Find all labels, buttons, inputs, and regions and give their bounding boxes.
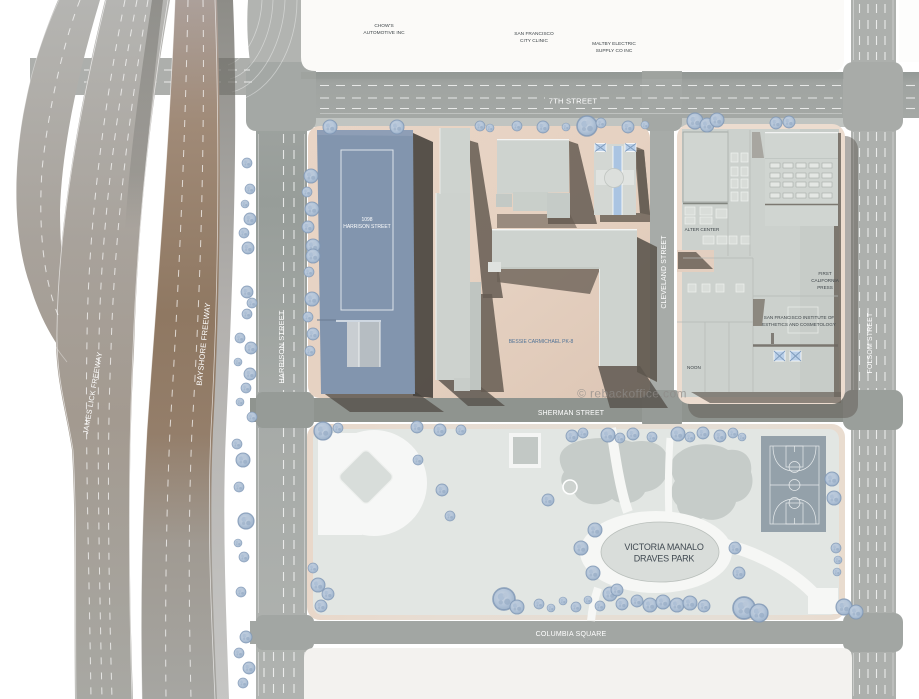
svg-text:VICTORIA MANALO: VICTORIA MANALO bbox=[624, 542, 704, 552]
svg-text:HARRISON STREET: HARRISON STREET bbox=[343, 224, 391, 230]
svg-text:© rebackoffice.com: © rebackoffice.com bbox=[577, 387, 687, 401]
svg-text:SHERMAN STREET: SHERMAN STREET bbox=[538, 410, 605, 417]
svg-text:CLEVELAND STREET: CLEVELAND STREET bbox=[661, 235, 668, 309]
svg-text:ESTHETICS AND COSMETOLOGY: ESTHETICS AND COSMETOLOGY bbox=[762, 322, 836, 327]
svg-text:MALTBY ELECTRIC: MALTBY ELECTRIC bbox=[592, 41, 636, 47]
svg-text:ALTER CENTER: ALTER CENTER bbox=[685, 227, 720, 232]
svg-text:1098: 1098 bbox=[361, 217, 372, 223]
svg-text:NOON: NOON bbox=[687, 365, 701, 370]
svg-text:CALIFORNIA: CALIFORNIA bbox=[811, 278, 840, 283]
svg-text:SAN FRANCISCO INSTITUTE OF: SAN FRANCISCO INSTITUTE OF bbox=[764, 315, 835, 320]
svg-text:BESSIE CARMICHAEL PK-8: BESSIE CARMICHAEL PK-8 bbox=[509, 339, 574, 345]
svg-text:FIRST: FIRST bbox=[818, 271, 831, 276]
svg-text:SAN FRANCISCO: SAN FRANCISCO bbox=[514, 31, 554, 37]
svg-text:PRESS: PRESS bbox=[817, 285, 833, 290]
svg-text:DRAVES PARK: DRAVES PARK bbox=[634, 554, 695, 564]
svg-text:CHOW'S: CHOW'S bbox=[374, 23, 393, 29]
svg-text:FOLSOM STREET: FOLSOM STREET bbox=[867, 312, 874, 373]
svg-text:AUTOMOTIVE INC: AUTOMOTIVE INC bbox=[363, 30, 405, 36]
svg-text:CITY CLINIC: CITY CLINIC bbox=[520, 38, 548, 44]
svg-text:COLUMBIA SQUARE: COLUMBIA SQUARE bbox=[536, 631, 607, 638]
svg-text:HARRISON STREET: HARRISON STREET bbox=[277, 310, 286, 384]
svg-text:SUPPLY CO INC: SUPPLY CO INC bbox=[596, 48, 633, 54]
svg-text:7TH STREET: 7TH STREET bbox=[549, 97, 598, 106]
